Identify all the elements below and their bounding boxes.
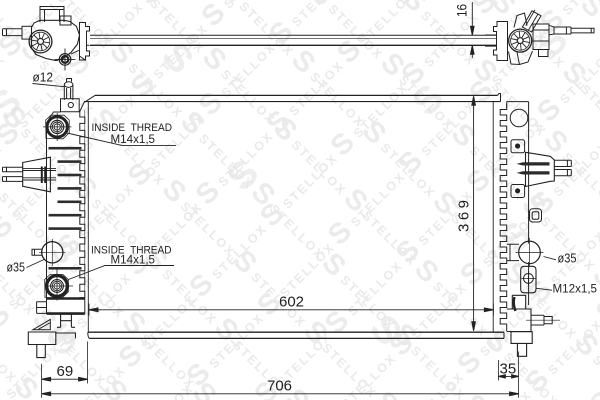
svg-text:369: 369	[456, 200, 473, 232]
svg-text:M12x1,5: M12x1,5	[553, 282, 598, 296]
svg-text:ø35: ø35	[7, 260, 26, 275]
svg-text:ø12: ø12	[33, 70, 54, 85]
svg-text:69: 69	[57, 363, 74, 380]
svg-text:35: 35	[500, 361, 517, 378]
svg-text:M14x1,5: M14x1,5	[111, 132, 156, 146]
svg-text:ø35: ø35	[558, 251, 577, 266]
svg-text:16: 16	[454, 4, 470, 17]
svg-text:M14x1,5: M14x1,5	[111, 253, 156, 267]
svg-text:706: 706	[267, 378, 292, 395]
svg-text:602: 602	[279, 294, 304, 311]
